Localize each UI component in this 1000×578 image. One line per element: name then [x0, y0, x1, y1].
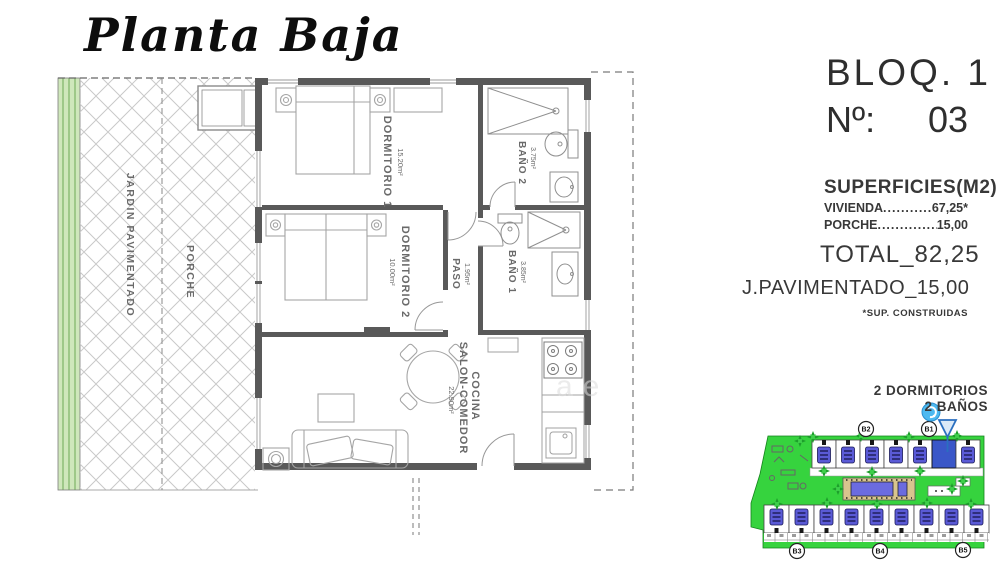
dormitorio1-furniture — [276, 86, 442, 174]
porche-label: PORCHE — [184, 245, 196, 299]
neighbor-unit-outline — [591, 72, 633, 490]
coffee-table — [318, 394, 354, 422]
hedge-strip — [58, 78, 80, 490]
dot-leader: ...................... — [883, 201, 932, 215]
dormitorio2-area: 10.00m² — [388, 258, 397, 286]
marker-b3: B3 — [790, 544, 805, 559]
unit-features: 2 DORMITORIOS 2 BAÑOS — [874, 383, 988, 415]
block-label: BLOQ. 1 — [826, 52, 991, 94]
bano2-area: 3.75m² — [529, 147, 536, 169]
jardin-area: JARDIN PAVIMENTADO PORCHE — [58, 78, 260, 490]
marker-b5: B5 — [956, 543, 971, 558]
bano1-label: BAÑO 1 — [506, 250, 519, 294]
surfaces-title: SUPERFICIES(M2) — [824, 177, 997, 199]
bano1-area: 3.85m² — [519, 261, 526, 283]
svg-text:B1: B1 — [925, 427, 934, 434]
cocina-label-line2: SALON-COMEDOR — [457, 342, 469, 455]
site-walkway — [810, 468, 983, 476]
bano2-label: BAÑO 2 — [516, 141, 529, 185]
surface-label: VIVIENDA — [824, 201, 883, 215]
cocina-label-line1: COCINA — [469, 371, 481, 420]
total-value: 82,25 — [915, 241, 980, 269]
door-paso — [448, 212, 476, 240]
terrace-row — [764, 533, 989, 542]
highlighted-unit — [932, 440, 956, 468]
total-label: TOTAL — [820, 241, 900, 269]
surface-value: 67,25* — [932, 201, 968, 215]
site-bottom-units — [764, 505, 989, 542]
floor-plan-page: { "title": "Planta Baja", "info_panel": … — [0, 0, 1000, 578]
marker-b4: B4 — [873, 544, 888, 559]
surface-value: 15,00 — [937, 218, 968, 232]
porch-wardrobe — [198, 86, 260, 130]
pool — [851, 482, 893, 496]
page-title: Planta Baja — [84, 8, 404, 62]
dormitorio1-area: 15.20m² — [396, 148, 405, 176]
jardin-label: JARDIN PAVIMENTADO — [124, 173, 136, 317]
paved-row: J.PAVIMENTADO _ 15,00 — [742, 277, 968, 300]
window-dorm2-left — [255, 240, 262, 326]
paving-herringbone — [80, 78, 255, 490]
svg-text:B2: B2 — [862, 427, 871, 434]
cocina-area: 22.90m² — [447, 386, 456, 414]
window-dorm1-left — [255, 148, 262, 210]
kids-pool — [898, 482, 907, 496]
site-top-units — [812, 440, 980, 468]
surface-label: PORCHE — [824, 218, 877, 232]
unit-number-row: Nº: 03 — [826, 99, 968, 141]
unit-number-label: Nº: — [826, 99, 875, 141]
paved-separator: _ — [905, 277, 917, 300]
window-bano1-right — [584, 300, 591, 330]
surface-row-vivienda: VIVIENDA ...................... 67,25* — [824, 201, 968, 215]
bano2-fixtures — [488, 88, 578, 202]
dormitorio2-furniture — [266, 214, 386, 300]
svg-text:B3: B3 — [793, 549, 802, 556]
total-row: TOTAL _ 82,25 — [820, 241, 968, 269]
sofa — [292, 430, 408, 468]
dormitorio1-label: DORMITORIO 1 — [381, 116, 393, 208]
window-bano2-right — [584, 100, 591, 132]
footnote: *SUP. CONSTRUIDAS — [863, 308, 968, 319]
room-labels: DORMITORIO 1 15.20m² BAÑO 2 3.75m² DORMI… — [381, 116, 609, 455]
paso-area: 1.95m² — [463, 263, 470, 285]
door-bano2 — [490, 182, 515, 207]
door-bano1 — [478, 221, 503, 246]
paved-label: J.PAVIMENTADO — [742, 277, 905, 300]
door-entrance — [482, 434, 514, 466]
svg-text:B4: B4 — [876, 549, 885, 556]
bedrooms-count: 2 DORMITORIOS — [874, 383, 988, 399]
bathrooms-count: 2 BAÑOS — [874, 399, 988, 415]
total-separator: _ — [900, 241, 914, 269]
dot-leader: ...................... — [877, 218, 936, 232]
surface-row-porche: PORCHE ...................... 15,00 — [824, 218, 968, 232]
door-dorm2 — [415, 302, 443, 330]
watermark: ae — [556, 370, 609, 403]
marker-b1: B1 — [922, 422, 937, 437]
window-salon-left — [255, 395, 262, 452]
paso-label: PASO — [450, 258, 461, 290]
salon-furniture — [263, 343, 467, 470]
paved-value: 15,00 — [917, 277, 970, 300]
site-plan: B2 B1 B3 B4 B5 — [751, 403, 989, 559]
dormitorio2-label: DORMITORIO 2 — [399, 226, 411, 318]
unit-number-value: 03 — [928, 99, 968, 141]
svg-text:B5: B5 — [959, 548, 968, 555]
window-kitchen-right — [584, 425, 591, 458]
marker-b2: B2 — [859, 422, 874, 437]
